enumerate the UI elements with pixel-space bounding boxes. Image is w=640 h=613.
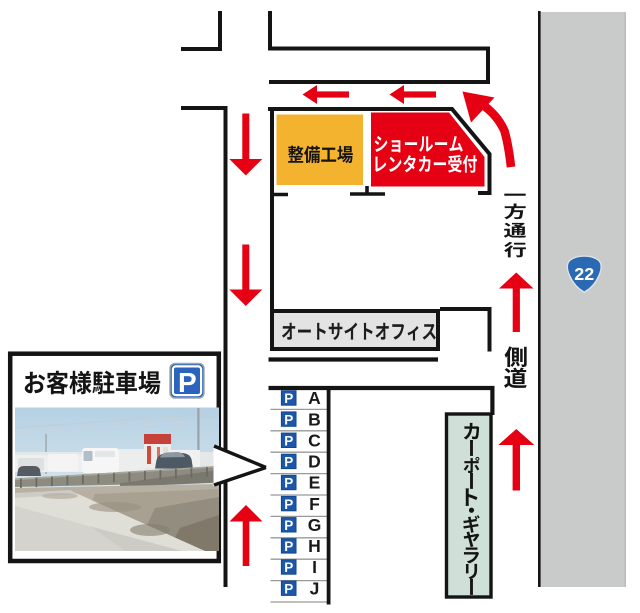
svg-text:P: P — [284, 581, 293, 596]
svg-text:H: H — [308, 536, 321, 556]
svg-text:E: E — [309, 473, 321, 493]
svg-text:J: J — [310, 578, 320, 598]
svg-text:F: F — [309, 494, 320, 514]
svg-text:P: P — [284, 412, 293, 427]
svg-text:P: P — [178, 367, 197, 398]
svg-text:G: G — [308, 515, 322, 535]
svg-text:P: P — [284, 476, 293, 491]
svg-text:22: 22 — [574, 264, 594, 284]
svg-text:P: P — [284, 539, 293, 554]
svg-text:I: I — [312, 557, 317, 577]
svg-text:D: D — [308, 452, 321, 472]
svg-text:A: A — [308, 388, 321, 408]
svg-text:B: B — [308, 409, 321, 429]
svg-text:P: P — [284, 455, 293, 470]
svg-text:P: P — [284, 560, 293, 575]
svg-text:P: P — [284, 434, 293, 449]
svg-text:P: P — [284, 518, 293, 533]
svg-text:P: P — [284, 391, 293, 406]
svg-text:C: C — [308, 431, 321, 451]
svg-text:P: P — [284, 497, 293, 512]
